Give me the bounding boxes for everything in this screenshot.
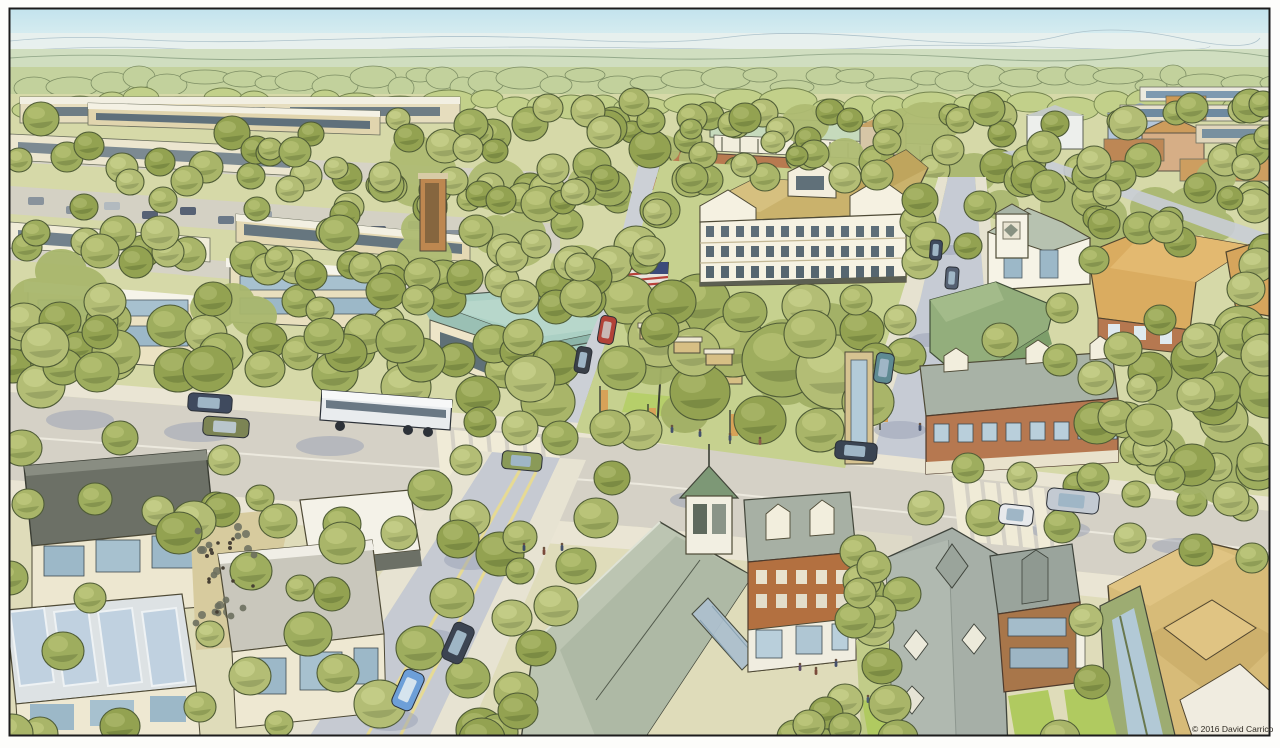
svg-text:© 2016 David Carrico: © 2016 David Carrico [1192, 724, 1274, 734]
